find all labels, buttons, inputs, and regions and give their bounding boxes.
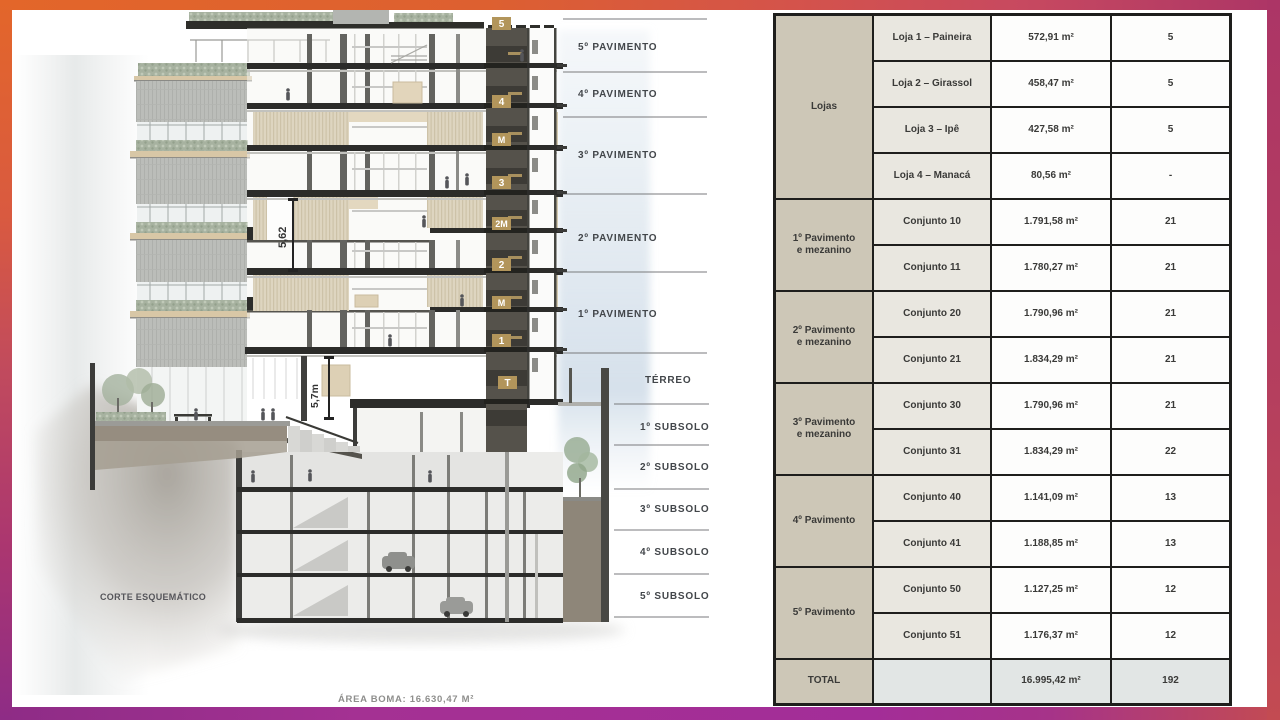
svg-text:M: M [498,135,506,145]
svg-text:4: 4 [499,97,505,108]
svg-text:5: 5 [499,19,505,30]
svg-text:3: 3 [499,178,505,189]
svg-text:5,62: 5,62 [277,227,289,248]
svg-text:T: T [504,378,510,389]
svg-text:1: 1 [499,336,505,347]
svg-text:M: M [498,298,506,308]
svg-text:5,7m: 5,7m [309,384,321,408]
svg-text:2M: 2M [495,219,508,229]
svg-text:2: 2 [499,260,505,271]
